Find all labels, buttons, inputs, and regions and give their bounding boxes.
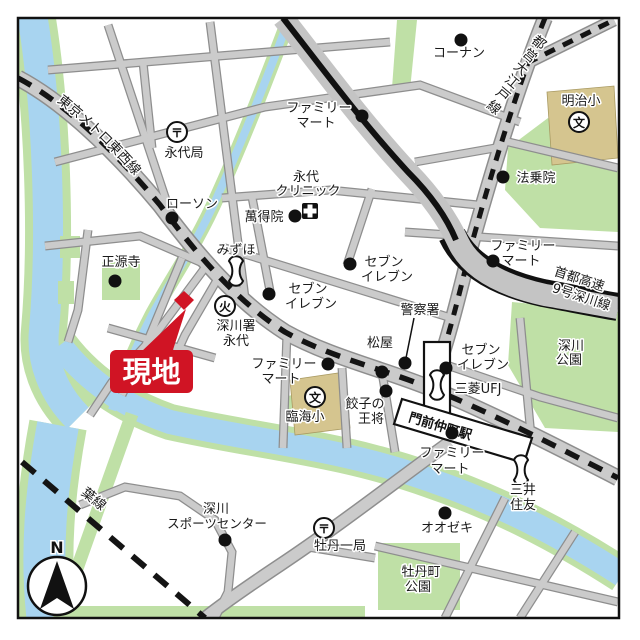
site-label: 現地 bbox=[122, 355, 180, 389]
poi-dot-famima-top bbox=[356, 110, 369, 123]
poi-dot-hojoin bbox=[497, 171, 510, 184]
poi-famima-top-1: ファミリー bbox=[286, 101, 351, 116]
hospital-icon bbox=[302, 203, 318, 219]
poi-eidai-clinic-1: 永代 bbox=[293, 170, 319, 185]
fire-station-glyph: 火 bbox=[219, 300, 232, 314]
poi-dot-konan bbox=[455, 34, 468, 47]
poi-dot-oozeki bbox=[439, 507, 452, 520]
poi-mizuho: みずほ bbox=[216, 243, 255, 258]
poi-famima-station-1: ファミリー bbox=[419, 446, 484, 461]
poi-lawson: ローソン bbox=[166, 197, 218, 212]
poi-botancho-park-2: 公園 bbox=[405, 580, 431, 595]
map-canvas: 門前仲町駅 東京メトロ東西線 京葉線 都 営 大 江 戸 線 首都高速 9号深川… bbox=[0, 0, 640, 640]
poi-seven-station-2: イレブン bbox=[457, 357, 509, 373]
poi-shogenji: 正源寺 bbox=[101, 255, 140, 270]
poi-matsuya: 松屋 bbox=[367, 336, 393, 351]
poi-famima-center-1: ファミリー bbox=[251, 357, 316, 372]
poi-famima-expwy-2: マート bbox=[501, 254, 540, 269]
poi-mitsubishi-ufj: 三菱UFJ bbox=[455, 382, 502, 397]
poi-gyoza-2: 王将 bbox=[358, 412, 384, 427]
poi-rinkai-elementary: 臨海小 bbox=[285, 410, 324, 425]
poi-fire-station-2: 永代 bbox=[223, 334, 249, 349]
poi-botan-post: 牡丹一局 bbox=[314, 539, 366, 554]
location-map: 門前仲町駅 東京メトロ東西線 京葉線 都 営 大 江 戸 線 首都高速 9号深川… bbox=[0, 0, 640, 640]
poi-sports-center-2: スポーツセンター bbox=[167, 516, 267, 531]
poi-dot-lawson bbox=[166, 212, 179, 225]
poi-hojoin: 法乗院 bbox=[516, 171, 555, 186]
compass-north-label: N bbox=[50, 538, 63, 557]
post-office-glyph: 〒 bbox=[171, 126, 183, 140]
green-small-2 bbox=[58, 281, 74, 304]
fire-station-icon: 火 bbox=[215, 296, 235, 316]
poi-dot-famima-station bbox=[446, 427, 459, 440]
poi-fire-station-1: 深川署 bbox=[216, 319, 255, 334]
poi-dot-matsuya bbox=[376, 366, 389, 379]
poi-dot-famima-center bbox=[322, 358, 335, 371]
school-icon: 文 bbox=[305, 387, 325, 407]
poi-seven-north-2: イレブン bbox=[361, 269, 413, 285]
poi-dot-seven-north bbox=[344, 258, 357, 271]
school-glyph: 文 bbox=[309, 390, 322, 405]
poi-seven-west-1: セブン bbox=[288, 281, 327, 297]
poi-dot-gyoza bbox=[380, 385, 393, 398]
post-office-icon: 〒 bbox=[167, 122, 187, 142]
poi-dot-mantokuin bbox=[289, 210, 302, 223]
poi-sports-center-1: 深川 bbox=[203, 502, 229, 517]
poi-mantokuin: 萬得院 bbox=[244, 209, 283, 225]
poi-famima-top-2: マート bbox=[296, 116, 335, 131]
school-icon: 文 bbox=[569, 112, 589, 132]
poi-konan: コーナン bbox=[433, 46, 485, 61]
poi-mitsui-2: 住友 bbox=[510, 497, 536, 513]
post-office-icon: 〒 bbox=[314, 518, 334, 538]
poi-famima-expwy-1: ファミリー bbox=[490, 239, 555, 254]
poi-seven-station-1: セブン bbox=[461, 342, 500, 358]
poi-famima-center-2: マート bbox=[261, 372, 300, 387]
poi-gyoza-1: 餃子の bbox=[345, 396, 384, 412]
poi-eidai-post: 永代局 bbox=[164, 146, 203, 161]
poi-fukagawa-park-2: 公園 bbox=[556, 353, 582, 368]
poi-dot-famima-expressway bbox=[487, 255, 500, 268]
school-glyph: 文 bbox=[573, 115, 586, 130]
poi-dot-police bbox=[399, 357, 412, 370]
poi-mitsui-1: 三井 bbox=[510, 483, 536, 498]
poi-dot-sports-center bbox=[219, 534, 232, 547]
poi-botancho-park-1: 牡丹町 bbox=[401, 565, 440, 580]
poi-dot-seven-west bbox=[263, 288, 276, 301]
poi-seven-north-1: セブン bbox=[364, 254, 403, 270]
poi-dot-shogenji bbox=[109, 275, 122, 288]
poi-seven-west-2: イレブン bbox=[285, 296, 337, 312]
poi-meiji-elementary: 明治小 bbox=[561, 94, 600, 109]
poi-famima-station-2: マート bbox=[430, 462, 469, 477]
poi-eidai-clinic-2: クリニック bbox=[275, 184, 340, 199]
poi-fukagawa-park-1: 深川 bbox=[558, 339, 584, 354]
post-office-glyph: 〒 bbox=[318, 522, 330, 536]
poi-oozeki: オオゼキ bbox=[421, 521, 473, 536]
poi-police: 警察署 bbox=[400, 302, 439, 318]
